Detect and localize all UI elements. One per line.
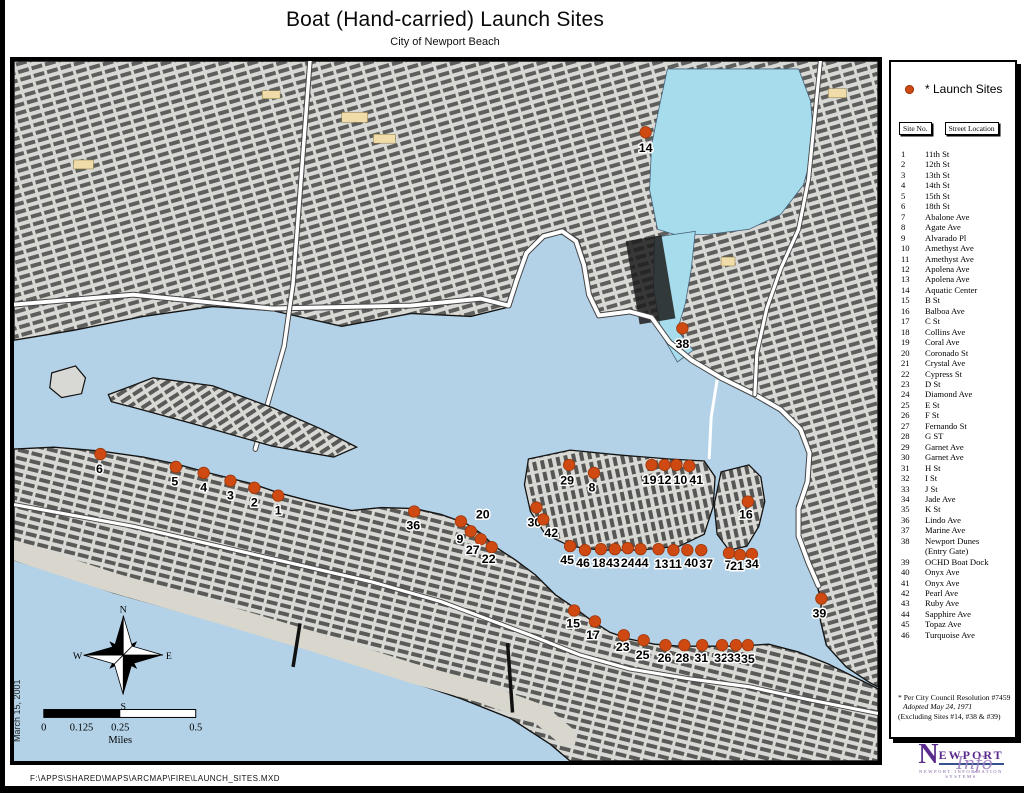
site-row: 35K St <box>891 504 1015 514</box>
site-street: Garnet Ave <box>925 442 1015 452</box>
scale-0: 0 <box>41 722 46 733</box>
launch-site-dot-icon <box>609 543 621 554</box>
site-no: 6 <box>891 201 925 211</box>
launch-site-number-label: 24 <box>621 556 635 570</box>
site-row: 30Garnet Ave <box>891 452 1015 462</box>
site-row: 16Balboa Ave <box>891 306 1015 316</box>
launch-site-number-label: 2 <box>251 496 258 510</box>
site-no: 17 <box>891 316 925 326</box>
site-no: 45 <box>891 619 925 629</box>
site-row: 43Ruby Ave <box>891 598 1015 608</box>
site-no: 10 <box>891 243 925 253</box>
launch-site-number-label: 46 <box>576 556 590 570</box>
launch-site-dot-icon <box>588 467 600 478</box>
site-row: 26F St <box>891 410 1015 420</box>
site-no: 4 <box>891 180 925 190</box>
site-street: Balboa Ave <box>925 306 1015 316</box>
site-street: OCHD Boat Dock <box>925 557 1015 567</box>
scale-025: 0.25 <box>111 722 129 733</box>
site-row: 42Pearl Ave <box>891 588 1015 598</box>
launch-site-dot-icon <box>95 448 107 459</box>
launch-site-number-label: 37 <box>699 557 713 571</box>
launch-site-dot-icon <box>170 461 182 472</box>
site-no: 12 <box>891 264 925 274</box>
launch-site-dot-icon <box>563 459 575 470</box>
launch-site-dot-icon <box>638 634 650 645</box>
site-no: 24 <box>891 389 925 399</box>
launch-site-dot-icon <box>682 544 694 555</box>
launch-site-number-label: 19 <box>643 473 657 487</box>
launch-site-number-label: 10 <box>673 473 687 487</box>
launch-site-dot-icon <box>579 544 591 555</box>
site-no: 16 <box>891 306 925 316</box>
launch-site-number-label: 39 <box>813 606 827 620</box>
site-row: 313th St <box>891 170 1015 180</box>
site-street: Diamond Ave <box>925 389 1015 399</box>
launch-site-dot-icon <box>198 467 210 478</box>
compass-e-label: E <box>166 651 172 662</box>
site-row: 27Fernando St <box>891 421 1015 431</box>
site-street: Collins Ave <box>925 327 1015 337</box>
site-street: 13th St <box>925 170 1015 180</box>
launch-site-dot-icon <box>677 323 689 334</box>
launch-site-dot-icon <box>679 639 691 650</box>
launch-site-marker: 38 <box>675 323 689 352</box>
site-row: 8Agate Ave <box>891 222 1015 232</box>
site-no: 27 <box>891 421 925 431</box>
sheet-border-left <box>0 0 5 786</box>
launch-site-marker: 31 <box>694 639 708 665</box>
site-row: 24Diamond Ave <box>891 389 1015 399</box>
site-street: B St <box>925 295 1015 305</box>
footnote-line-3: (Excluding Sites #14, #38 & #39) <box>898 712 1012 722</box>
launch-site-marker: 25 <box>636 634 650 662</box>
site-no: 44 <box>891 609 925 619</box>
site-row: 14Aquatic Center <box>891 285 1015 295</box>
site-no: 21 <box>891 358 925 368</box>
site-street: Newport Dunes (Entry Gate) <box>925 536 1015 557</box>
launch-site-dot-icon <box>640 127 652 138</box>
site-no: 26 <box>891 410 925 420</box>
launch-site-number-label: 8 <box>589 481 596 495</box>
legend-row: * Launch Sites <box>905 82 1015 96</box>
site-no: 36 <box>891 515 925 525</box>
site-street: 11th St <box>925 149 1015 159</box>
site-street: Agate Ave <box>925 222 1015 232</box>
launch-site-number-label: 20 <box>476 507 490 521</box>
site-street: Cypress St <box>925 369 1015 379</box>
site-row: 15B St <box>891 295 1015 305</box>
site-row: 45Topaz Ave <box>891 619 1015 629</box>
launch-site-number-label: 34 <box>745 557 759 571</box>
site-no: 34 <box>891 494 925 504</box>
launch-site-number-label: 12 <box>658 473 672 487</box>
title-block: Boat (Hand-carried) Launch Sites City of… <box>0 8 890 48</box>
site-no: 32 <box>891 473 925 483</box>
launch-site-number-label: 26 <box>658 651 672 665</box>
site-street: 12th St <box>925 159 1015 169</box>
col-header-site-no: Site No. <box>899 122 932 135</box>
launch-site-number-label: 44 <box>635 556 649 570</box>
site-row: 21Crystal Ave <box>891 358 1015 368</box>
launch-site-dot-icon <box>622 542 634 553</box>
site-no: 41 <box>891 578 925 588</box>
launch-site-marker: 24 <box>621 542 635 570</box>
site-row: 12Apolena Ave <box>891 264 1015 274</box>
site-street: Onyx Ave <box>925 567 1015 577</box>
site-street: Amethyst Ave <box>925 254 1015 264</box>
site-row: 34Jade Ave <box>891 494 1015 504</box>
launch-site-dot-icon <box>742 639 754 650</box>
site-no: 30 <box>891 452 925 462</box>
site-no: 5 <box>891 191 925 201</box>
page-title: Boat (Hand-carried) Launch Sites <box>0 8 890 32</box>
site-no: 2 <box>891 159 925 169</box>
launch-site-number-label: 16 <box>739 507 753 521</box>
site-no: 35 <box>891 504 925 514</box>
site-row: 38Newport Dunes (Entry Gate) <box>891 536 1015 557</box>
launch-site-dot-icon <box>742 496 754 507</box>
site-row: 22Cypress St <box>891 369 1015 379</box>
site-row: 414th St <box>891 180 1015 190</box>
site-no: 22 <box>891 369 925 379</box>
site-row: 13Apolena Ave <box>891 274 1015 284</box>
site-no: 28 <box>891 431 925 441</box>
launch-site-dot-icon <box>730 639 742 650</box>
launch-site-dot-icon <box>684 460 696 471</box>
site-no: 13 <box>891 274 925 284</box>
site-street: H St <box>925 463 1015 473</box>
site-street: I St <box>925 473 1015 483</box>
launch-site-number-label: 41 <box>689 473 703 487</box>
launch-site-dot-icon <box>568 605 580 616</box>
site-street: Apolena Ave <box>925 264 1015 274</box>
footnote-line-1: * Per City Council Resolution #7459 <box>898 693 1012 703</box>
site-street: Coronado St <box>925 348 1015 358</box>
site-street: Pearl Ave <box>925 588 1015 598</box>
site-street: Coral Ave <box>925 337 1015 347</box>
site-no: 23 <box>891 379 925 389</box>
site-row: 19Coral Ave <box>891 337 1015 347</box>
site-street: Onyx Ave <box>925 578 1015 588</box>
launch-site-number-label: 11 <box>669 557 682 571</box>
site-street: Amethyst Ave <box>925 243 1015 253</box>
site-street: Topaz Ave <box>925 619 1015 629</box>
site-no: 3 <box>891 170 925 180</box>
site-street: Lindo Ave <box>925 515 1015 525</box>
launch-site-number-label: 28 <box>675 651 689 665</box>
site-street: G ST <box>925 431 1015 441</box>
site-row: 11Amethyst Ave <box>891 254 1015 264</box>
launch-site-dot-icon <box>564 540 576 551</box>
launch-site-number-label: 14 <box>639 141 653 155</box>
launch-site-number-label: 13 <box>655 557 669 571</box>
site-street: Turquoise Ave <box>925 630 1015 640</box>
footnote: * Per City Council Resolution #7459 Adop… <box>898 693 1012 722</box>
launch-site-dot-icon <box>653 543 665 554</box>
launch-site-dot-icon <box>595 543 607 554</box>
launch-site-number-label: 18 <box>592 556 606 570</box>
site-row: 515th St <box>891 191 1015 201</box>
launch-site-dot-icon <box>716 639 728 650</box>
launch-site-marker: 35 <box>741 639 755 666</box>
map-date: March 15, 2001 <box>12 679 22 742</box>
scale-05: 0.5 <box>189 722 202 733</box>
site-no: 18 <box>891 327 925 337</box>
site-street: F St <box>925 410 1015 420</box>
site-row: 20Coronado St <box>891 348 1015 358</box>
launch-site-marker: 23 <box>616 630 630 655</box>
site-street: Apolena Ave <box>925 274 1015 284</box>
site-street: Sapphire Ave <box>925 609 1015 619</box>
launch-site-number-label: 6 <box>96 462 103 476</box>
site-street: E St <box>925 400 1015 410</box>
site-no: 40 <box>891 567 925 577</box>
launch-site-number-label: 42 <box>544 526 558 540</box>
newport-info-logo: NEWPORTInfo NEWPORT INFORMATION SYSTEMS <box>902 744 1020 779</box>
launch-site-dot-icon <box>225 475 237 486</box>
site-row: 33J St <box>891 484 1015 494</box>
site-street: D St <box>925 379 1015 389</box>
site-row: 41Onyx Ave <box>891 578 1015 588</box>
site-no: 11 <box>891 254 925 264</box>
site-row: 25E St <box>891 400 1015 410</box>
site-row: 46Turquoise Ave <box>891 630 1015 640</box>
site-row: 37Marine Ave <box>891 525 1015 535</box>
legend-label: * Launch Sites <box>925 82 1002 96</box>
site-street: Fernando St <box>925 421 1015 431</box>
site-row: 44Sapphire Ave <box>891 609 1015 619</box>
launch-site-marker: 32 <box>714 639 728 665</box>
launch-site-number-label: 43 <box>606 556 620 570</box>
site-row: 17C St <box>891 316 1015 326</box>
site-row: 40Onyx Ave <box>891 567 1015 577</box>
logo-initial: N <box>918 739 938 770</box>
site-row: 10Amethyst Ave <box>891 243 1015 253</box>
launch-site-number-label: 31 <box>694 651 708 665</box>
site-no: 39 <box>891 557 925 567</box>
site-street: 15th St <box>925 191 1015 201</box>
compass-w-label: W <box>73 651 83 662</box>
launch-site-dot-icon <box>635 543 647 554</box>
site-street: Jade Ave <box>925 494 1015 504</box>
footnote-line-2: Adopted May 24, 1971 <box>898 702 1012 712</box>
site-row: 31H St <box>891 463 1015 473</box>
launch-site-dot-icon <box>589 616 601 627</box>
launch-site-number-label: 45 <box>560 553 574 567</box>
compass-n-label: N <box>120 604 127 615</box>
site-table-body: 111th St212th St313th St414th St515th St… <box>891 149 1015 640</box>
launch-site-number-label: 1 <box>275 503 282 517</box>
launch-site-number-label: 32 <box>714 651 728 665</box>
launch-site-dot-icon <box>538 514 550 525</box>
launch-site-dot-icon <box>671 459 683 470</box>
site-row: 18Collins Ave <box>891 327 1015 337</box>
site-row: 618th St <box>891 201 1015 211</box>
map-svg: N E S W 0 0.125 0.25 0.5 Miles 123456789… <box>14 61 878 761</box>
launch-site-number-label: 23 <box>616 640 630 654</box>
site-street: Ruby Ave <box>925 598 1015 608</box>
site-row: 7Abalone Ave <box>891 212 1015 222</box>
site-no: 8 <box>891 222 925 232</box>
launch-site-dot-icon <box>668 544 680 555</box>
source-file-path: F:\APPS\SHARED\MAPS\ARCMAP\FIRE\LAUNCH_S… <box>30 774 280 783</box>
launch-site-number-label: 40 <box>684 556 698 570</box>
site-street: J St <box>925 484 1015 494</box>
launch-site-number-label: 21 <box>730 559 744 573</box>
site-row: 28G ST <box>891 431 1015 441</box>
launch-site-dot-icon <box>659 459 671 470</box>
launch-site-number-label: 29 <box>560 474 574 488</box>
table-header: Site No. Street Location <box>899 122 1015 135</box>
logo-script-word: Info <box>956 753 992 774</box>
launch-site-number-label: 15 <box>566 616 580 630</box>
site-no: 7 <box>891 212 925 222</box>
launch-site-dot-icon <box>660 639 672 650</box>
launch-site-marker: 14 <box>639 127 653 156</box>
site-row: 23D St <box>891 379 1015 389</box>
logo-wordmark: NEWPORTInfo <box>918 744 1003 766</box>
launch-site-number-label: 33 <box>727 651 741 665</box>
site-no: 9 <box>891 233 925 243</box>
site-no: 19 <box>891 337 925 347</box>
legend-panel: * Launch Sites Site No. Street Location … <box>889 60 1017 739</box>
launch-site-number-label: 25 <box>636 648 650 662</box>
launch-site-dot-icon <box>531 502 543 513</box>
site-street: 18th St <box>925 201 1015 211</box>
launch-site-marker: 15 <box>566 605 580 631</box>
site-no: 14 <box>891 285 925 295</box>
site-row: 212th St <box>891 159 1015 169</box>
site-street: Crystal Ave <box>925 358 1015 368</box>
site-street: Garnet Ave <box>925 452 1015 462</box>
launch-site-dot-icon <box>249 482 261 493</box>
site-no: 25 <box>891 400 925 410</box>
site-no: 1 <box>891 149 925 159</box>
site-no: 15 <box>891 295 925 305</box>
site-street: Aquatic Center <box>925 285 1015 295</box>
launch-site-dot-icon <box>696 639 708 650</box>
site-no: 37 <box>891 525 925 535</box>
launch-site-marker: 26 <box>658 639 672 665</box>
site-street: 14th St <box>925 180 1015 190</box>
site-no: 33 <box>891 484 925 494</box>
site-street: C St <box>925 316 1015 326</box>
page-subtitle: City of Newport Beach <box>0 36 890 48</box>
launch-site-number-label: 3 <box>227 489 234 503</box>
site-row: 29Garnet Ave <box>891 442 1015 452</box>
site-no: 43 <box>891 598 925 608</box>
launch-site-number-label: 5 <box>171 475 178 489</box>
site-no: 42 <box>891 588 925 598</box>
launch-site-number-label: 35 <box>741 652 755 666</box>
launch-site-dot-icon <box>465 526 477 537</box>
col-header-street-location: Street Location <box>945 122 999 135</box>
launch-site-number-label: 17 <box>586 628 600 642</box>
site-street: Abalone Ave <box>925 212 1015 222</box>
sheet-border-bottom <box>0 786 1024 793</box>
launch-site-dot-icon <box>455 516 467 527</box>
launch-site-number-label: 9 <box>456 532 463 546</box>
launch-site-number-label: 22 <box>482 552 496 566</box>
launch-site-number-label: 4 <box>200 481 207 495</box>
site-no: 38 <box>891 536 925 557</box>
site-street: K St <box>925 504 1015 514</box>
launch-site-marker: 12 <box>658 459 672 487</box>
site-no: 31 <box>891 463 925 473</box>
launch-site-dot-icon <box>646 459 658 470</box>
site-no: 29 <box>891 442 925 452</box>
scale-0125: 0.125 <box>70 722 93 733</box>
site-row: 32I St <box>891 473 1015 483</box>
site-row: 111th St <box>891 149 1015 159</box>
launch-site-dot-icon <box>816 593 828 604</box>
site-no: 46 <box>891 630 925 640</box>
launch-site-marker: 36 <box>406 506 420 533</box>
launch-site-number-label: 36 <box>406 518 420 532</box>
launch-site-number-label: 27 <box>466 543 480 557</box>
site-street: Marine Ave <box>925 525 1015 535</box>
site-street: Alvarado Pl <box>925 233 1015 243</box>
site-row: 39OCHD Boat Dock <box>891 557 1015 567</box>
launch-site-dot-icon <box>272 490 284 501</box>
map-frame: N E S W 0 0.125 0.25 0.5 Miles 123456789… <box>10 57 882 765</box>
scale-units: Miles <box>108 735 132 746</box>
launch-site-number-label: 38 <box>675 337 689 351</box>
site-row: 9Alvarado Pl <box>891 233 1015 243</box>
launch-site-dot-icon <box>905 85 914 94</box>
site-row: 36Lindo Ave <box>891 515 1015 525</box>
launch-site-dot-icon <box>695 544 707 555</box>
site-no: 20 <box>891 348 925 358</box>
launch-site-dot-icon <box>408 506 420 517</box>
launch-site-marker: 34 <box>745 548 759 571</box>
